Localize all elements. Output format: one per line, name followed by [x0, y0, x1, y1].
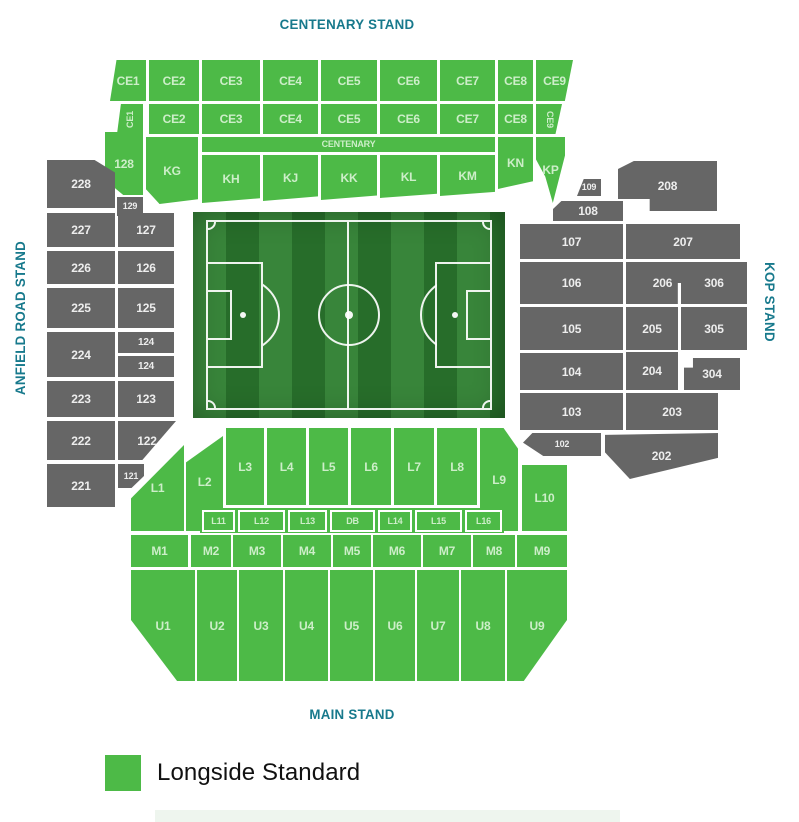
section-label: L2: [198, 476, 212, 488]
section-CE6[interactable]: CE6: [380, 60, 437, 101]
section-label: 206: [653, 277, 672, 289]
section-202: 202: [605, 433, 718, 479]
section-label: KJ: [283, 172, 298, 184]
penalty-spot-left: [240, 312, 246, 318]
section-label: 124: [138, 338, 154, 348]
section-label: 208: [658, 180, 677, 192]
section-KJ[interactable]: KJ: [263, 155, 318, 201]
section-label: 305: [704, 323, 723, 335]
section-label: KL: [401, 171, 417, 183]
section-label: L6: [364, 461, 378, 473]
section-CE5[interactable]: CE5: [321, 60, 377, 101]
section-226: 226: [47, 251, 115, 284]
section-label: 222: [71, 435, 90, 447]
legend-label: Longside Standard: [157, 759, 360, 787]
section-CE7[interactable]: CE7: [440, 60, 495, 101]
section-label: CE7: [456, 75, 479, 87]
section-label: 103: [562, 406, 581, 418]
pitch-boundary: [206, 220, 492, 410]
section-label: 106: [562, 277, 581, 289]
section-222: 222: [47, 421, 115, 460]
section-U5[interactable]: U5: [330, 570, 373, 681]
section-CE6[interactable]: CE6: [380, 104, 437, 134]
section-106: 106: [520, 262, 623, 304]
section-CE4[interactable]: CE4: [263, 104, 318, 134]
section-L15[interactable]: L15: [415, 510, 462, 532]
section-label: L16: [476, 517, 491, 526]
main-stand-title: MAIN STAND: [309, 706, 394, 722]
section-label: 204: [642, 365, 661, 377]
section-label: M6: [389, 545, 405, 557]
section-label: KH: [223, 173, 240, 185]
section-CE2[interactable]: CE2: [149, 60, 199, 101]
section-label: 207: [673, 236, 692, 248]
section-label: 105: [562, 323, 581, 335]
section-label: M8: [486, 545, 502, 557]
section-M4[interactable]: M4: [283, 535, 331, 567]
section-L6[interactable]: L6: [351, 428, 391, 505]
goal-area-left: [208, 290, 232, 340]
section-KK[interactable]: KK: [321, 155, 377, 200]
section-M5[interactable]: M5: [333, 535, 371, 567]
section-label: 205: [642, 323, 661, 335]
section-124: 124: [118, 356, 174, 377]
section-label: 129: [123, 202, 137, 211]
section-U8[interactable]: U8: [461, 570, 505, 681]
section-U6[interactable]: U6: [375, 570, 415, 681]
section-208: 208: [618, 161, 717, 211]
section-204: 204: [626, 352, 678, 390]
section-109: 109: [577, 179, 601, 196]
section-label: KN: [507, 157, 524, 169]
section-L12[interactable]: L12: [238, 510, 285, 532]
section-label: M3: [249, 545, 265, 557]
section-label: L13: [300, 517, 315, 526]
corner-arc-bottom-left: [206, 400, 216, 410]
section-108: 108: [553, 201, 623, 221]
section-M7[interactable]: M7: [423, 535, 471, 567]
section-U2[interactable]: U2: [197, 570, 237, 681]
section-127: 127: [118, 213, 174, 247]
section-KM[interactable]: KM: [440, 155, 495, 196]
section-label: L4: [280, 461, 294, 473]
section-U1[interactable]: U1: [131, 570, 195, 681]
football-pitch: [193, 212, 505, 418]
section-M2[interactable]: M2: [191, 535, 231, 567]
section-121: 121: [118, 464, 144, 488]
section-label: 124: [138, 362, 154, 372]
section-label: KM: [458, 170, 476, 182]
section-224: 224: [47, 332, 115, 377]
section-label: M4: [299, 545, 315, 557]
section-label: L12: [254, 517, 269, 526]
section-label: 107: [562, 236, 581, 248]
section-label: CE4: [279, 75, 302, 87]
section-KN[interactable]: KN: [498, 137, 533, 189]
section-label: 104: [562, 366, 581, 378]
section-221: 221: [47, 464, 115, 507]
corner-arc-top-right: [482, 220, 492, 230]
section-KL[interactable]: KL: [380, 155, 437, 198]
section-M6[interactable]: M6: [373, 535, 421, 567]
center-spot: [345, 311, 353, 319]
section-label: U7: [431, 620, 446, 632]
section-label: CE6: [397, 75, 420, 87]
section-122: 122: [118, 421, 176, 460]
section-label: CE3: [220, 75, 243, 87]
section-label: CE1: [117, 75, 140, 87]
section-label: CE3: [220, 113, 243, 125]
section-label: L1: [151, 482, 165, 494]
section-label: 224: [71, 349, 90, 361]
section-205: 205: [626, 307, 678, 350]
section-L11[interactable]: L11: [202, 510, 235, 532]
section-104: 104: [520, 353, 623, 390]
section-CENTENARY[interactable]: CENTENARY: [202, 137, 495, 152]
section-label: U9: [530, 620, 545, 632]
section-L13[interactable]: L13: [288, 510, 327, 532]
section-label: L9: [492, 474, 506, 486]
section-KP[interactable]: KP: [536, 137, 565, 203]
section-123: 123: [118, 381, 174, 417]
section-L16[interactable]: L16: [465, 510, 502, 532]
section-label: U2: [210, 620, 225, 632]
section-L3[interactable]: L3: [226, 428, 264, 505]
section-225: 225: [47, 288, 115, 328]
section-label: U1: [156, 620, 171, 632]
stadium-seat-map: CENTENARY STAND ANFIELD ROAD STAND KOP S…: [0, 0, 799, 822]
section-label: CE7: [456, 113, 479, 125]
section-label: U8: [476, 620, 491, 632]
section-label: L15: [431, 517, 446, 526]
section-CE9[interactable]: CE9: [536, 104, 562, 134]
section-label: L8: [450, 461, 464, 473]
section-label: 228: [71, 178, 90, 190]
section-label: L3: [238, 461, 252, 473]
section-L5[interactable]: L5: [309, 428, 348, 505]
section-label: 109: [582, 183, 596, 192]
section-U7[interactable]: U7: [417, 570, 459, 681]
section-M9[interactable]: M9: [517, 535, 567, 567]
goal-area-right: [466, 290, 490, 340]
section-label: U3: [254, 620, 269, 632]
centenary-stand-title: CENTENARY STAND: [280, 16, 415, 32]
section-U3[interactable]: U3: [239, 570, 283, 681]
section-label: M2: [203, 545, 219, 557]
section-U4[interactable]: U4: [285, 570, 328, 681]
section-CE3[interactable]: CE3: [202, 104, 260, 134]
section-305: 305: [681, 307, 747, 350]
section-203: 203: [626, 393, 718, 430]
section-label: M9: [534, 545, 550, 557]
section-label: CE2: [163, 113, 186, 125]
section-label: CENTENARY: [322, 140, 376, 149]
section-label: 126: [136, 262, 155, 274]
section-label: 306: [704, 277, 723, 289]
section-label: U5: [344, 620, 359, 632]
section-124: 124: [118, 332, 174, 353]
section-CE7[interactable]: CE7: [440, 104, 495, 134]
legend-swatch-longside-standard: [105, 755, 141, 791]
section-label: L7: [407, 461, 421, 473]
section-label: U6: [388, 620, 403, 632]
section-label: CE8: [504, 113, 527, 125]
section-label: 221: [71, 480, 90, 492]
section-label: 203: [662, 406, 681, 418]
section-CE9[interactable]: CE9: [536, 60, 573, 101]
section-M3[interactable]: M3: [233, 535, 281, 567]
section-label: DB: [346, 517, 359, 526]
section-label: 128: [114, 158, 133, 170]
section-M8[interactable]: M8: [473, 535, 515, 567]
section-CE2[interactable]: CE2: [149, 104, 199, 134]
section-CE3[interactable]: CE3: [202, 60, 260, 101]
section-label: 127: [136, 224, 155, 236]
section-label: 108: [578, 205, 597, 217]
section-label: 123: [136, 393, 155, 405]
section-label: KG: [163, 165, 181, 177]
section-KG[interactable]: KG: [146, 137, 198, 204]
section-102: 102: [523, 433, 601, 456]
section-CE8[interactable]: CE8: [498, 104, 533, 134]
section-label: L14: [388, 517, 403, 526]
section-label: CE5: [338, 75, 361, 87]
section-125: 125: [118, 288, 174, 328]
section-L8[interactable]: L8: [437, 428, 477, 505]
section-CE1[interactable]: CE1: [110, 60, 146, 101]
section-label: KP: [542, 164, 558, 176]
section-label: 102: [555, 440, 569, 449]
section-label: CE9: [544, 111, 553, 128]
section-CE4[interactable]: CE4: [263, 60, 318, 101]
section-label: 122: [137, 435, 156, 447]
section-label: M7: [439, 545, 455, 557]
section-label: CE8: [504, 75, 527, 87]
section-CE1[interactable]: CE1: [117, 104, 143, 134]
section-207: 207: [626, 224, 740, 259]
section-CE5[interactable]: CE5: [321, 104, 377, 134]
penalty-spot-right: [452, 312, 458, 318]
section-M1[interactable]: M1: [131, 535, 188, 567]
section-label: CE1: [125, 111, 134, 128]
section-U9[interactable]: U9: [507, 570, 567, 681]
section-126: 126: [118, 251, 174, 284]
section-L7[interactable]: L7: [394, 428, 434, 505]
section-105: 105: [520, 307, 623, 350]
section-label: CE6: [397, 113, 420, 125]
section-label: 223: [71, 393, 90, 405]
section-223: 223: [47, 381, 115, 417]
section-227: 227: [47, 213, 115, 247]
section-label: L11: [211, 517, 225, 526]
section-DB[interactable]: DB: [330, 510, 375, 532]
section-label: CE5: [338, 113, 361, 125]
section-CE8[interactable]: CE8: [498, 60, 533, 101]
kop-stand-title: KOP STAND: [762, 262, 778, 342]
section-103: 103: [520, 393, 623, 430]
section-304: 304: [684, 358, 740, 390]
section-label: CE2: [163, 75, 186, 87]
section-label: 304: [702, 368, 721, 380]
section-107: 107: [520, 224, 623, 259]
section-label: L5: [322, 461, 336, 473]
section-L10[interactable]: L10: [522, 465, 567, 531]
section-label: CE9: [543, 75, 566, 87]
section-label: 227: [71, 224, 90, 236]
section-label: U4: [299, 620, 314, 632]
section-label: 225: [71, 302, 90, 314]
section-L4[interactable]: L4: [267, 428, 306, 505]
section-label: 121: [124, 472, 138, 481]
section-label: M1: [151, 545, 167, 557]
section-label: KK: [341, 172, 358, 184]
legend: Longside Standard: [105, 755, 360, 791]
anfield-road-stand-title: ANFIELD ROAD STAND: [12, 241, 28, 395]
section-label: L10: [534, 492, 554, 504]
section-label: 202: [652, 450, 671, 462]
corner-arc-top-left: [206, 220, 216, 230]
section-label: 125: [136, 302, 155, 314]
section-228: 228: [47, 160, 115, 208]
corner-arc-bottom-right: [482, 400, 492, 410]
section-label: CE4: [279, 113, 302, 125]
section-label: M5: [344, 545, 360, 557]
partial-next-legend-row: [155, 810, 620, 822]
section-L14[interactable]: L14: [378, 510, 412, 532]
section-label: 226: [71, 262, 90, 274]
section-KH[interactable]: KH: [202, 155, 260, 203]
